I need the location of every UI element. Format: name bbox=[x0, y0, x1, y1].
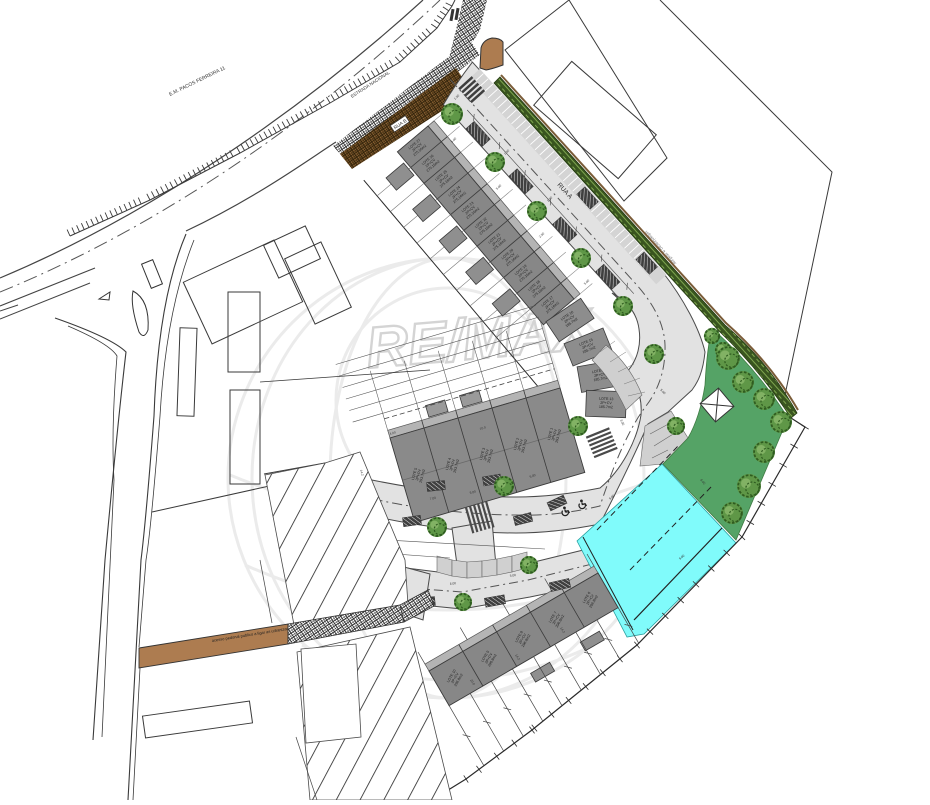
svg-text:185.7m2: 185.7m2 bbox=[599, 405, 613, 409]
